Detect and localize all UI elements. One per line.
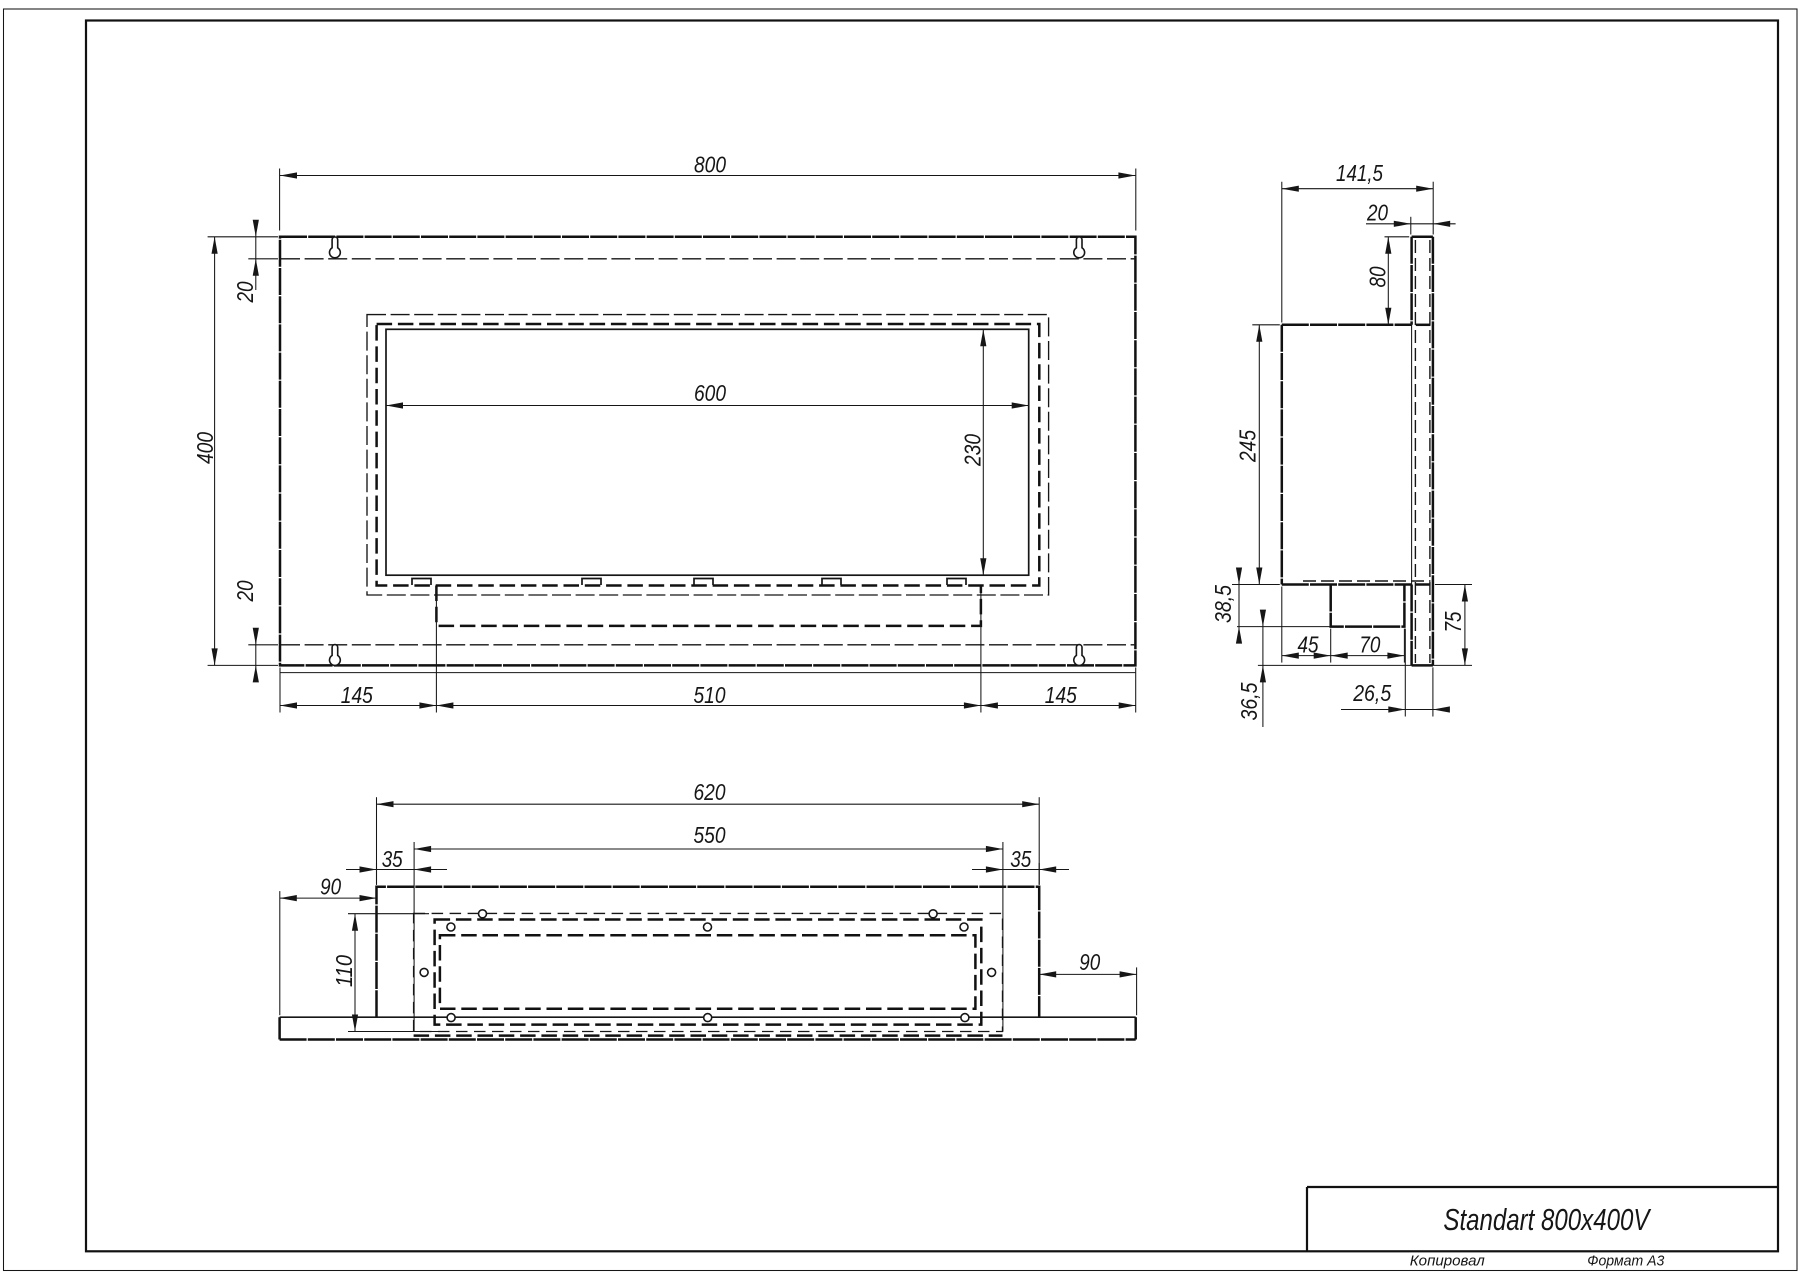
svg-text:20: 20	[232, 580, 258, 602]
svg-text:600: 600	[694, 380, 726, 406]
svg-text:20: 20	[1366, 200, 1388, 226]
svg-text:Standart 800x400V: Standart 800x400V	[1443, 1202, 1652, 1237]
svg-text:26,5: 26,5	[1352, 680, 1391, 706]
svg-text:Формат А3: Формат А3	[1587, 1252, 1665, 1269]
svg-text:75: 75	[1440, 611, 1466, 632]
svg-text:110: 110	[331, 955, 357, 987]
svg-text:141,5: 141,5	[1336, 160, 1383, 186]
svg-text:80: 80	[1365, 266, 1391, 287]
svg-text:20: 20	[232, 281, 258, 303]
svg-text:90: 90	[320, 873, 341, 899]
svg-text:38,5: 38,5	[1210, 585, 1236, 623]
svg-text:800: 800	[694, 152, 726, 178]
svg-text:45: 45	[1298, 631, 1319, 657]
svg-text:400: 400	[192, 432, 218, 464]
svg-text:620: 620	[694, 779, 726, 805]
svg-text:70: 70	[1359, 631, 1380, 657]
svg-text:230: 230	[960, 434, 986, 467]
svg-text:245: 245	[1234, 430, 1260, 463]
svg-text:Копировал: Копировал	[1410, 1252, 1486, 1269]
svg-text:145: 145	[341, 682, 373, 708]
svg-text:90: 90	[1079, 949, 1100, 975]
svg-text:510: 510	[694, 682, 726, 708]
svg-text:36,5: 36,5	[1236, 682, 1262, 720]
svg-text:550: 550	[694, 822, 726, 848]
svg-text:35: 35	[1010, 846, 1031, 872]
svg-text:145: 145	[1045, 682, 1077, 708]
svg-text:35: 35	[382, 846, 403, 872]
